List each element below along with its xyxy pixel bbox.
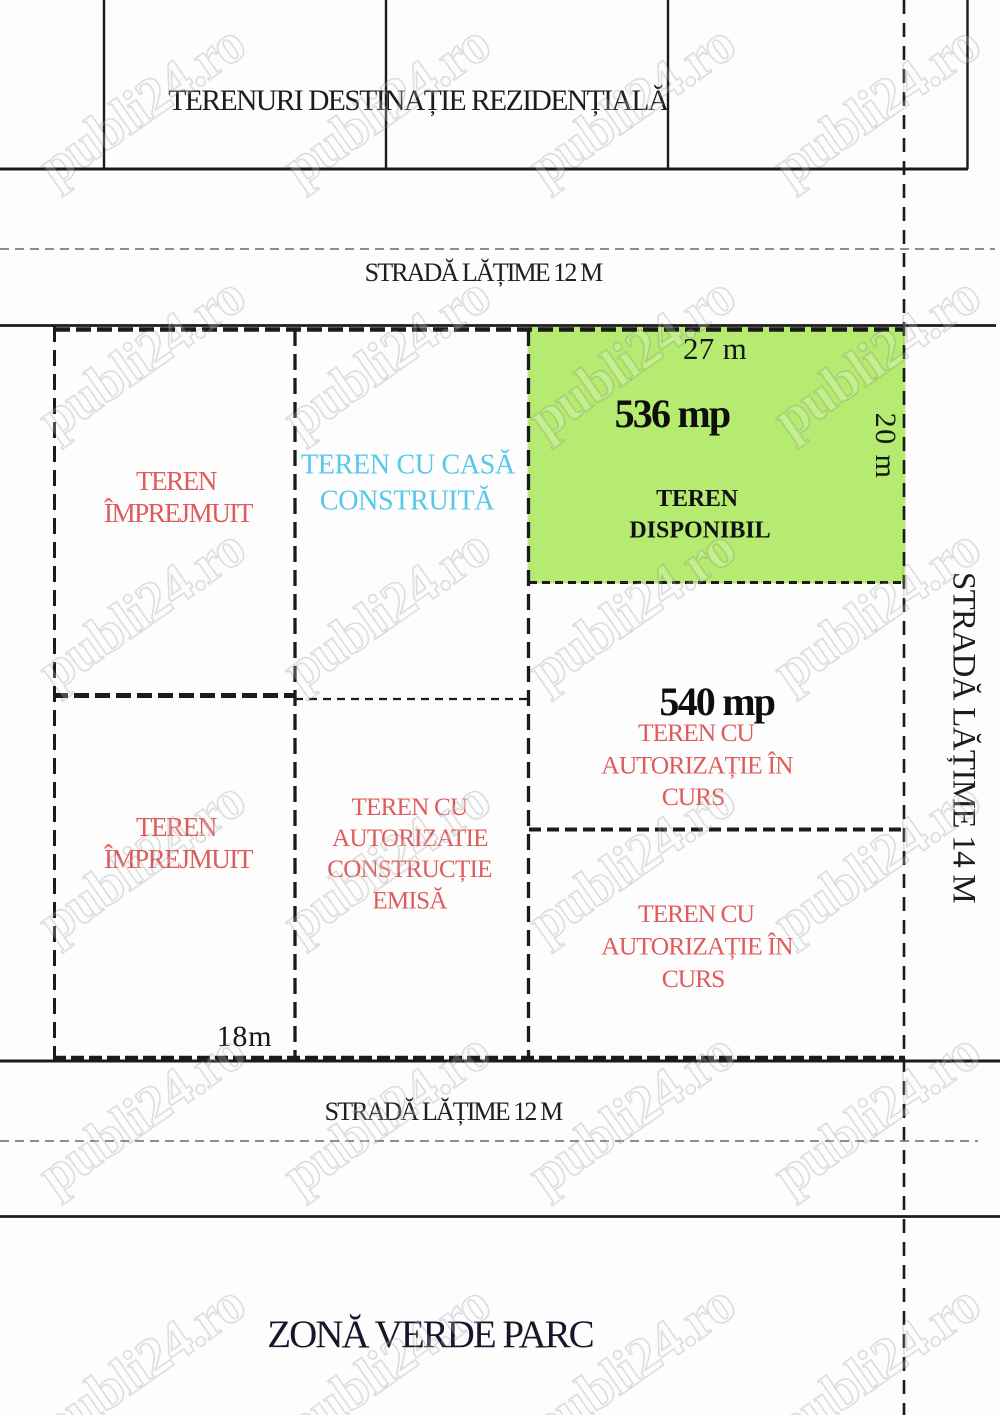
svg-text:STRADĂ LĂȚIME 12 M: STRADĂ LĂȚIME 12 M — [365, 258, 603, 287]
svg-text:CONSTRUITĂ: CONSTRUITĂ — [320, 486, 495, 517]
svg-text:STRADĂ LĂȚIME 14 M: STRADĂ LĂȚIME 14 M — [946, 572, 983, 904]
svg-text:TEREN CU: TEREN CU — [638, 899, 755, 928]
svg-text:CURS: CURS — [662, 964, 725, 993]
svg-text:AUTORIZAȚIE ÎN: AUTORIZAȚIE ÎN — [601, 751, 793, 780]
svg-text:ÎMPREJMUIT: ÎMPREJMUIT — [104, 498, 254, 528]
svg-text:20 m: 20 m — [869, 413, 902, 480]
svg-text:TEREN: TEREN — [656, 486, 739, 512]
svg-text:TEREN CU: TEREN CU — [638, 718, 755, 747]
svg-text:536 mp: 536 mp — [615, 391, 730, 436]
svg-text:TEREN CU CASĂ: TEREN CU CASĂ — [301, 450, 516, 481]
svg-text:TEREN: TEREN — [136, 466, 217, 496]
svg-text:AUTORIZAȚIE ÎN: AUTORIZAȚIE ÎN — [601, 932, 793, 961]
